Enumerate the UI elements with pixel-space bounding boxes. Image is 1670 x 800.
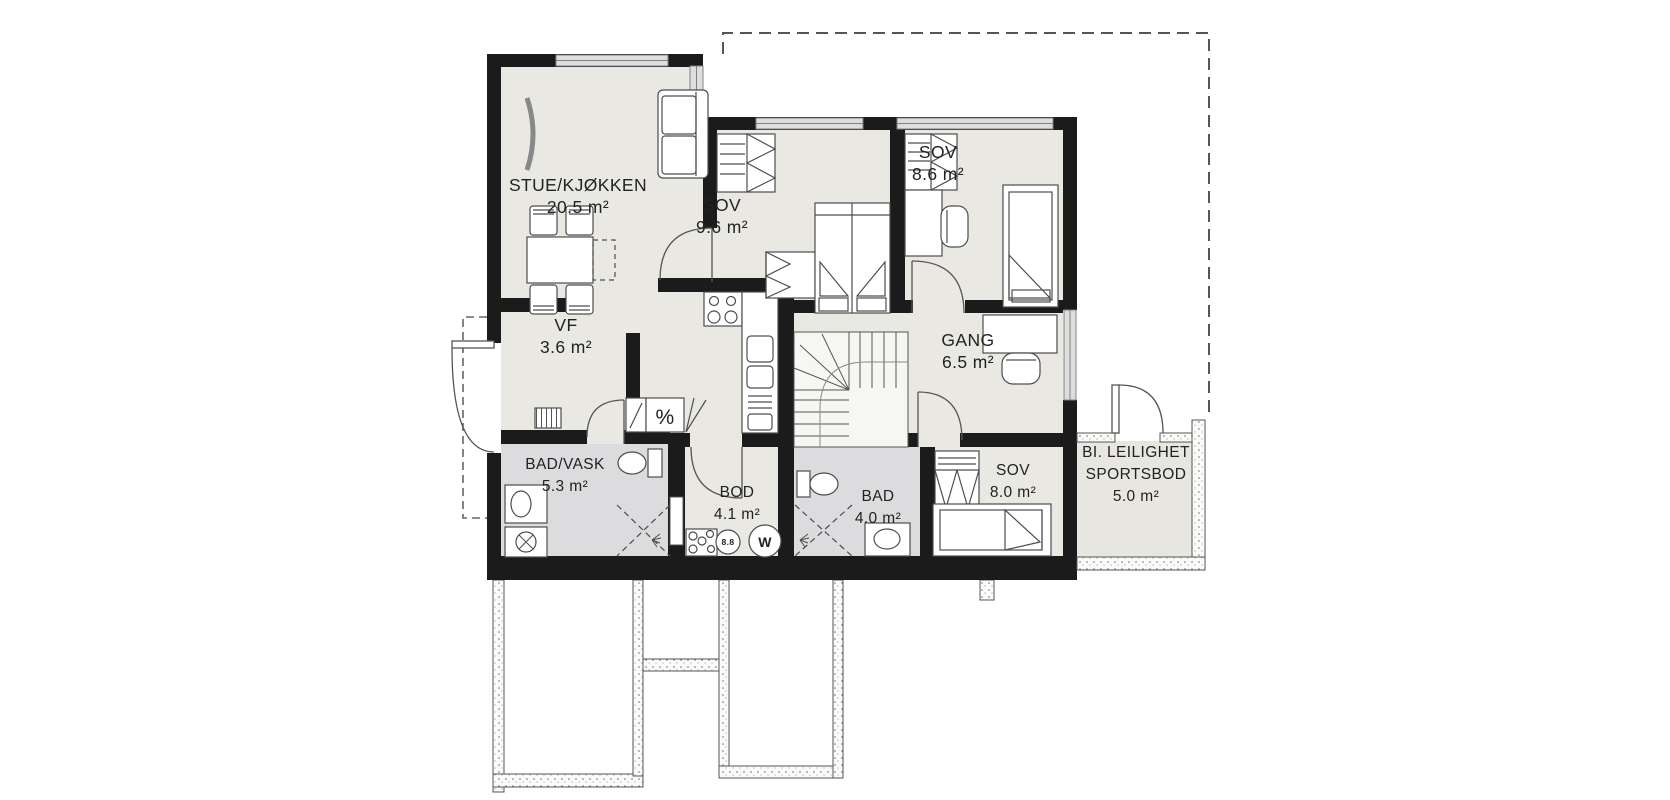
tech-percent-label: % (655, 406, 674, 429)
label-living-kitchen-area: 20.5 m² (547, 197, 609, 217)
staircase (794, 332, 908, 447)
toilet-tank (797, 471, 810, 497)
sportsbod-door-leaf (1112, 385, 1119, 433)
label-bath: BAD (861, 488, 894, 505)
entrance-door-swing (452, 348, 494, 452)
label-bedroom3: SOV (996, 462, 1030, 479)
vanity (865, 523, 910, 556)
label-hallway-area: 6.5 m² (942, 352, 994, 372)
label-sportsbod-area: 5.0 m² (1113, 488, 1159, 505)
label-bath-area: 4.0 m² (855, 510, 901, 527)
dining-table (527, 237, 593, 283)
label-living-kitchen: STUE/KJØKKEN (509, 175, 647, 195)
label-entry: VF (554, 315, 577, 335)
wardrobe (717, 134, 775, 192)
vent-grille (535, 408, 561, 428)
floorplan-page: STUE/KJØKKEN 20.5 m² SOV 9.6 m² SOV 8.6 … (0, 0, 1670, 800)
label-bedroom1-area: 9.6 m² (696, 217, 748, 237)
floorplan-drawing: STUE/KJØKKEN 20.5 m² SOV 9.6 m² SOV 8.6 … (0, 0, 1670, 800)
label-bedroom2: SOV (919, 142, 957, 162)
single-bed (1003, 185, 1058, 307)
entrance-door-leaf (452, 341, 494, 348)
label-entry-area: 3.6 m² (540, 337, 592, 357)
label-bedroom2-area: 8.6 m² (912, 164, 964, 184)
label-bath-laundry-area: 5.3 m² (542, 478, 588, 495)
label-storage-area: 4.1 m² (714, 506, 760, 523)
single-bed (933, 504, 1051, 556)
label-bedroom1: SOV (703, 195, 741, 215)
label-sportsbod-2: SPORTSBOD (1086, 466, 1187, 483)
drain-label: 8.8 (721, 537, 734, 547)
label-bedroom3-area: 8.0 m² (990, 484, 1036, 501)
sportsbod-door-swing (1119, 385, 1163, 433)
foundation-walls (493, 580, 994, 792)
label-bath-laundry: BAD/VASK (525, 456, 605, 473)
water-heater-label: W (758, 534, 772, 550)
desk (905, 190, 942, 256)
label-hallway: GANG (941, 330, 994, 350)
storage-door-leaf (670, 497, 683, 545)
toilet-bowl (618, 452, 646, 474)
label-sportsbod-1: BI. LEILIGHET (1082, 444, 1190, 461)
wardrobe (766, 252, 815, 298)
wardrobe (935, 451, 979, 509)
desk-chair (1002, 353, 1040, 384)
toilet-tank (648, 449, 662, 477)
toilet-bowl (810, 473, 838, 495)
label-storage: BOD (720, 484, 755, 501)
desk-chair (941, 206, 968, 247)
